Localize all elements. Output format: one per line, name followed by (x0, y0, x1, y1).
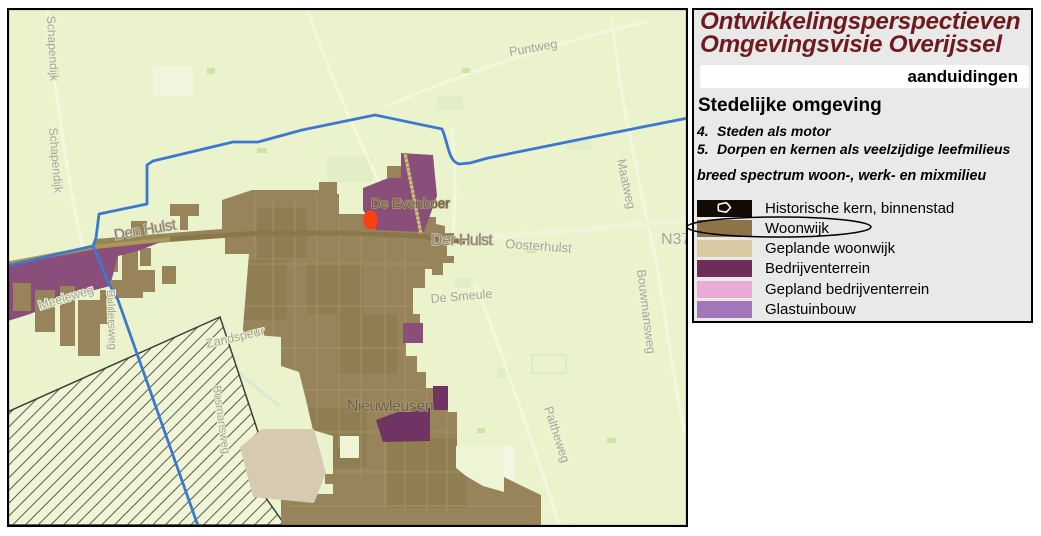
svg-text:Der Hulst: Der Hulst (431, 232, 493, 249)
svg-text:De Evenboer: De Evenboer (371, 196, 450, 211)
svg-text:Nieuwleusen: Nieuwleusen (347, 398, 433, 415)
svg-text:Buldersweg: Buldersweg (104, 290, 118, 350)
svg-text:N377: N377 (661, 231, 688, 248)
